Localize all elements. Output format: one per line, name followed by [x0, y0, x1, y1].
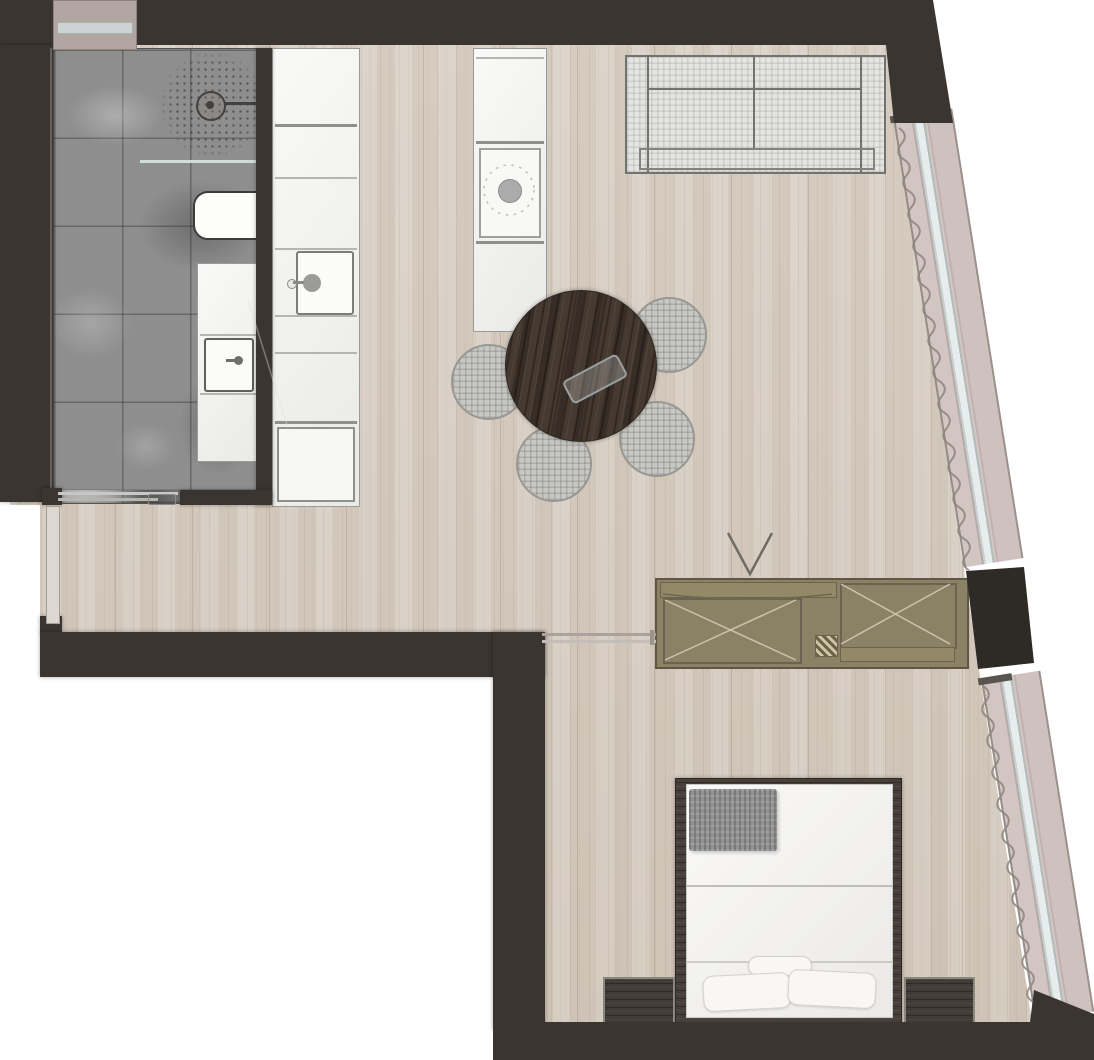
bedroom-sliding-door: [542, 633, 656, 636]
wall-living-bottom: [40, 632, 545, 677]
vanity-faucet: [234, 356, 243, 365]
counter-divider: [275, 421, 357, 424]
kitchen-faucet-spout: [293, 281, 304, 284]
island-divider: [476, 241, 544, 244]
shower-glass-screen: [140, 160, 257, 163]
sofa-cushion-split: [753, 57, 757, 150]
shower-arm: [224, 102, 256, 105]
shower-head-center: [206, 101, 214, 109]
counter-divider: [275, 248, 357, 250]
vanity-sink: [204, 338, 254, 392]
pillow: [787, 969, 877, 1010]
window-frame-cap: [978, 673, 1013, 685]
service-shaft-vent: [57, 22, 133, 34]
pillow: [702, 972, 792, 1013]
island-divider: [476, 57, 544, 59]
wall-bedroom-left: [493, 632, 545, 1030]
bedroom-sliding-door-track: [542, 640, 656, 643]
counter-divider: [275, 177, 357, 179]
oven: [277, 427, 355, 502]
wall-bathroom-kitchen: [256, 48, 272, 505]
wardrobe-top-shelf: [660, 582, 837, 598]
duvet-fold-line: [687, 885, 892, 887]
appliance-hatch: [815, 635, 838, 657]
counter-divider: [275, 124, 357, 127]
vanity-faucet-spout: [226, 359, 235, 362]
bathroom-sliding-door-track: [58, 498, 158, 501]
toilet: [193, 191, 259, 240]
wardrobe-section-left: [663, 598, 802, 664]
wardrobe-tv-unit: [655, 578, 969, 669]
floor-plan: [0, 0, 1094, 1060]
entry-door-leaf: [46, 506, 60, 624]
folded-blanket: [689, 789, 777, 851]
wardrobe-section-right: [840, 583, 957, 649]
dining-table: [505, 290, 657, 442]
bedroom-door-stop: [650, 630, 654, 645]
vanity-divider: [200, 334, 258, 336]
kitchen-faucet: [303, 274, 321, 292]
island-divider: [476, 141, 544, 144]
wall-left: [0, 45, 53, 502]
sofa: [625, 55, 886, 174]
sofa-front-rail: [639, 148, 875, 170]
bathroom-door-pull: [148, 494, 176, 505]
counter-divider: [275, 352, 357, 354]
vanity-divider: [200, 393, 258, 395]
wall-left-edge-line: [50, 48, 52, 492]
wardrobe-bottom-shelf: [840, 647, 955, 662]
counter-divider: [275, 315, 357, 317]
vanity-counter: [197, 263, 261, 462]
wall-bathroom-bottom: [180, 490, 272, 505]
wall-entry-top-stub: [42, 488, 62, 505]
service-shaft: [53, 0, 137, 50]
cooktop-burner: [498, 179, 522, 203]
